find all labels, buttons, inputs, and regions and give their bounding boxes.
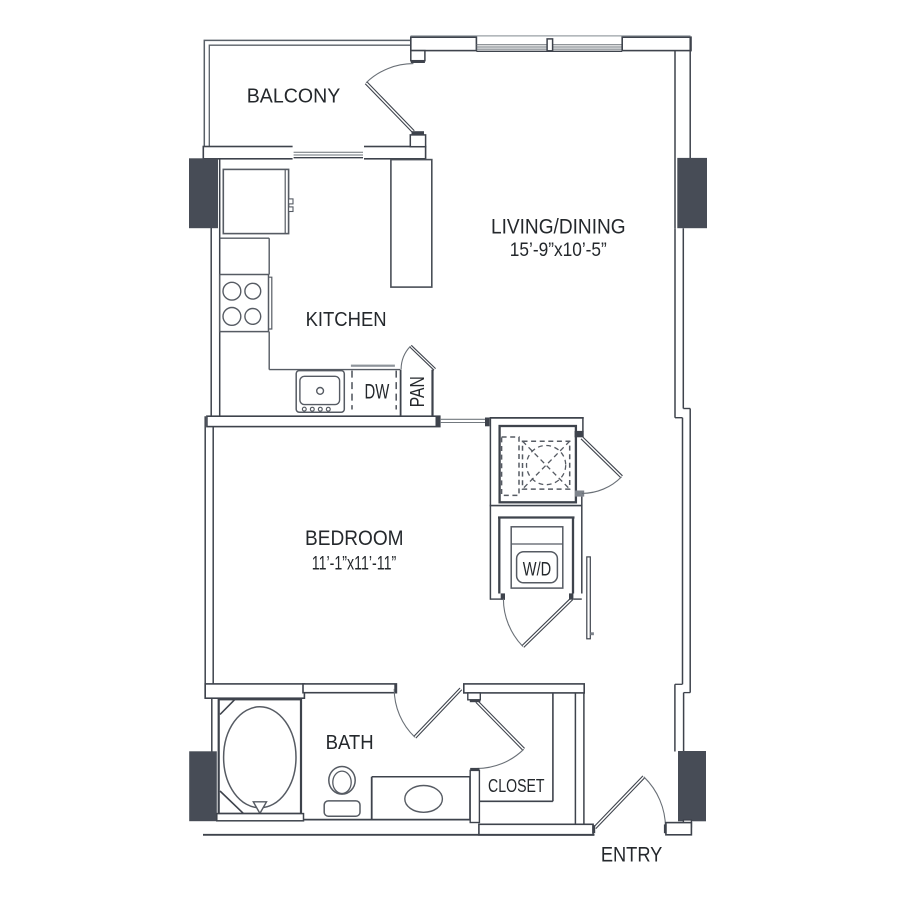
svg-text:PAN: PAN [407,376,429,407]
svg-text:BEDROOM: BEDROOM [305,526,404,550]
svg-text:BALCONY: BALCONY [247,85,341,107]
svg-text:BATH: BATH [326,732,374,754]
svg-text:DW: DW [365,381,390,404]
svg-text:ENTRY: ENTRY [601,843,663,866]
svg-text:15’-9”x10’-5”: 15’-9”x10’-5” [510,239,607,261]
svg-text:KITCHEN: KITCHEN [306,309,387,331]
svg-text:LIVING/DINING: LIVING/DINING [491,215,626,239]
svg-text:11’-1”x11’-11”: 11’-1”x11’-11” [312,552,397,574]
svg-text:CLOSET: CLOSET [488,776,545,796]
svg-text:W/D: W/D [523,558,551,580]
